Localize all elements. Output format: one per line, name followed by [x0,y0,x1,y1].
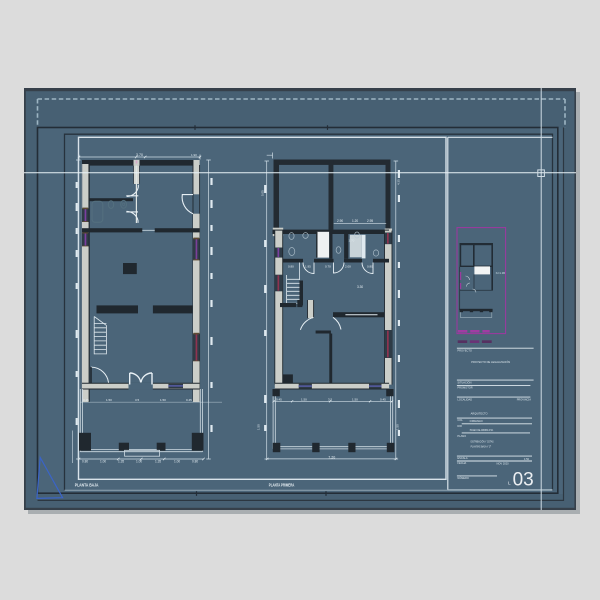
svg-text:1.00: 1.00 [136,460,142,464]
svg-text:4.35: 4.35 [397,179,401,185]
svg-text:L: L [508,480,511,486]
svg-text:1.50: 1.50 [301,397,307,401]
svg-text:03: 03 [513,469,534,490]
svg-text:PASEO DE ARRIBA Nº21: PASEO DE ARRIBA Nº21 [470,428,494,432]
svg-text:1:50: 1:50 [524,457,530,461]
svg-text:0.45: 0.45 [186,398,192,402]
svg-text:0.45: 0.45 [276,397,282,401]
svg-text:NOMBRE APELLIDO: NOMBRE APELLIDO [470,419,483,423]
svg-text:PROYECTO DE LEGALIZACIÓN: PROYECTO DE LEGALIZACIÓN [471,359,510,364]
svg-text:1.50: 1.50 [160,398,166,402]
svg-text:2.90: 2.90 [337,219,343,223]
svg-text:PLANTA PRIMERA: PLANTA PRIMERA [269,482,295,487]
svg-text:3.30: 3.30 [357,285,363,289]
svg-text:1.35: 1.35 [118,460,124,464]
svg-text:ESCALA: ESCALA [457,456,468,460]
svg-text:1.20: 1.20 [352,219,358,223]
svg-text:5.05: 5.05 [261,190,265,196]
svg-text:0.70: 0.70 [325,265,331,269]
svg-text:ARQUITECTO: ARQUITECTO [471,411,488,415]
svg-text:0.45: 0.45 [83,398,89,402]
svg-text:b=1.36: b=1.36 [496,271,506,275]
svg-text:3.70: 3.70 [136,153,143,157]
svg-text:DIR: DIR [457,424,462,428]
svg-text:0.80: 0.80 [82,460,88,464]
svg-text:PLANTA BAJA: PLANTA BAJA [75,482,99,487]
svg-text:1.00: 1.00 [174,460,180,464]
svg-text:1.50: 1.50 [352,397,358,401]
svg-text:NOV 2020: NOV 2020 [497,462,510,466]
svg-text:DISTRIBUCIÓN Y COTAS: DISTRIBUCIÓN Y COTAS [471,439,494,444]
svg-text:1.50: 1.50 [257,424,261,430]
svg-text:1.00: 1.00 [100,460,106,464]
svg-text:1.50: 1.50 [396,424,400,430]
svg-text:2.95: 2.95 [367,219,373,223]
svg-text:PLANO: PLANO [457,434,466,438]
svg-text:0.80: 0.80 [192,460,198,464]
svg-text:COL: COL [457,418,463,422]
svg-text:0.80: 0.80 [367,265,373,269]
svg-text:PLANTAS BAJA Y 1ª: PLANTAS BAJA Y 1ª [471,445,492,449]
svg-text:LOCALIDAD: LOCALIDAD [457,397,472,401]
svg-text:0.80: 0.80 [288,265,294,269]
svg-text:2.00: 2.00 [345,265,351,269]
svg-text:7.20: 7.20 [328,456,335,460]
svg-text:1.50: 1.50 [106,398,112,402]
svg-text:3.5: 3.5 [328,397,333,401]
svg-text:PROYECTO: PROYECTO [457,349,472,353]
svg-text:1.90: 1.90 [191,153,197,157]
svg-text:1.35: 1.35 [155,460,161,464]
svg-text:3.5: 3.5 [135,398,140,402]
svg-text:PROMOTOR: PROMOTOR [457,386,472,390]
svg-text:0.45: 0.45 [380,397,386,401]
svg-text:PROVINCIA: PROVINCIA [517,397,532,401]
svg-text:FECHA: FECHA [457,461,466,465]
svg-text:1.95: 1.95 [305,265,311,269]
svg-text:1.70: 1.70 [349,239,355,243]
